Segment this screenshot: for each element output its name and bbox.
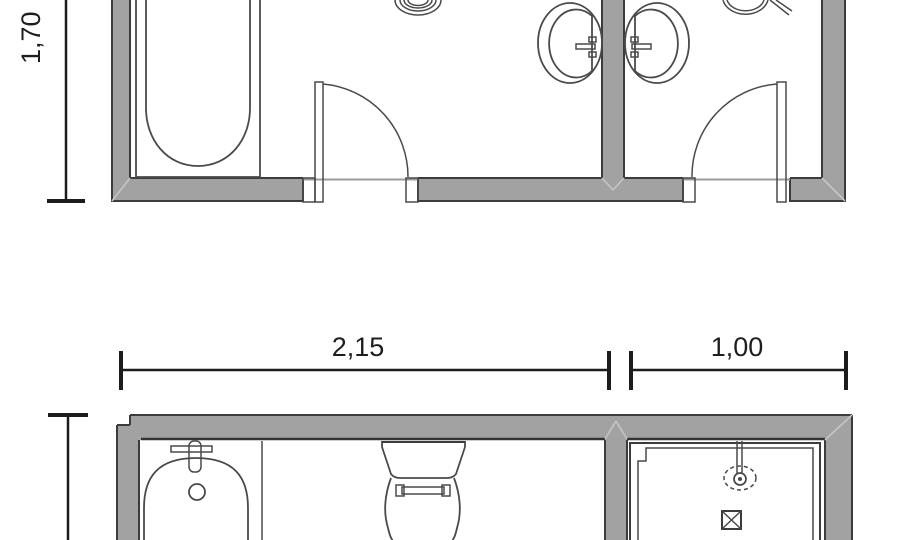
door-left <box>303 82 418 202</box>
dimension-bottom-plan-shower: 1,00 <box>629 332 848 390</box>
bathtub <box>136 0 260 177</box>
door-arc <box>692 84 777 177</box>
floorplan-canvas: 1,70 2,15 1,00 <box>0 0 900 540</box>
bowl <box>452 478 460 540</box>
toilet-partial-icon <box>723 0 768 14</box>
washbasin-right <box>625 3 689 83</box>
seat-hinge <box>402 487 444 494</box>
bowl <box>385 478 393 540</box>
shower <box>630 441 820 540</box>
door-swing-partial <box>770 0 792 15</box>
shower-head-arm <box>737 441 742 474</box>
dimension-top-plan-height: 1,70 <box>16 0 85 203</box>
basin-partial-icon <box>395 0 441 15</box>
shower-head-dot <box>738 477 742 481</box>
door-right <box>683 82 790 202</box>
wall-bottom-mid <box>418 178 683 202</box>
dimension-bottom-plan-vertical <box>48 413 88 540</box>
wall-pilaster-left <box>117 425 139 540</box>
dimension-bottom-plan-main: 2,15 <box>119 332 611 390</box>
wall-top-band <box>130 415 852 440</box>
wall-right-bottom-plan <box>825 415 852 540</box>
door-arc <box>323 84 408 177</box>
faucet-crossbar <box>171 446 212 452</box>
bidet <box>144 441 248 540</box>
wall-middle-top-plan <box>602 0 624 184</box>
dimension-label-main-width: 2,15 <box>332 332 385 362</box>
cistern <box>382 441 465 478</box>
dimension-label-height: 1,70 <box>16 11 46 64</box>
wall-right-top-plan <box>790 0 845 202</box>
floorplan-drawing: 1,70 2,15 1,00 <box>0 0 900 540</box>
door-leaf <box>315 82 323 202</box>
toilet <box>382 441 465 540</box>
washbasin-left <box>538 3 602 83</box>
door-leaf <box>777 82 786 202</box>
dimension-label-shower-width: 1,00 <box>711 332 764 362</box>
drain-hole <box>189 484 205 500</box>
